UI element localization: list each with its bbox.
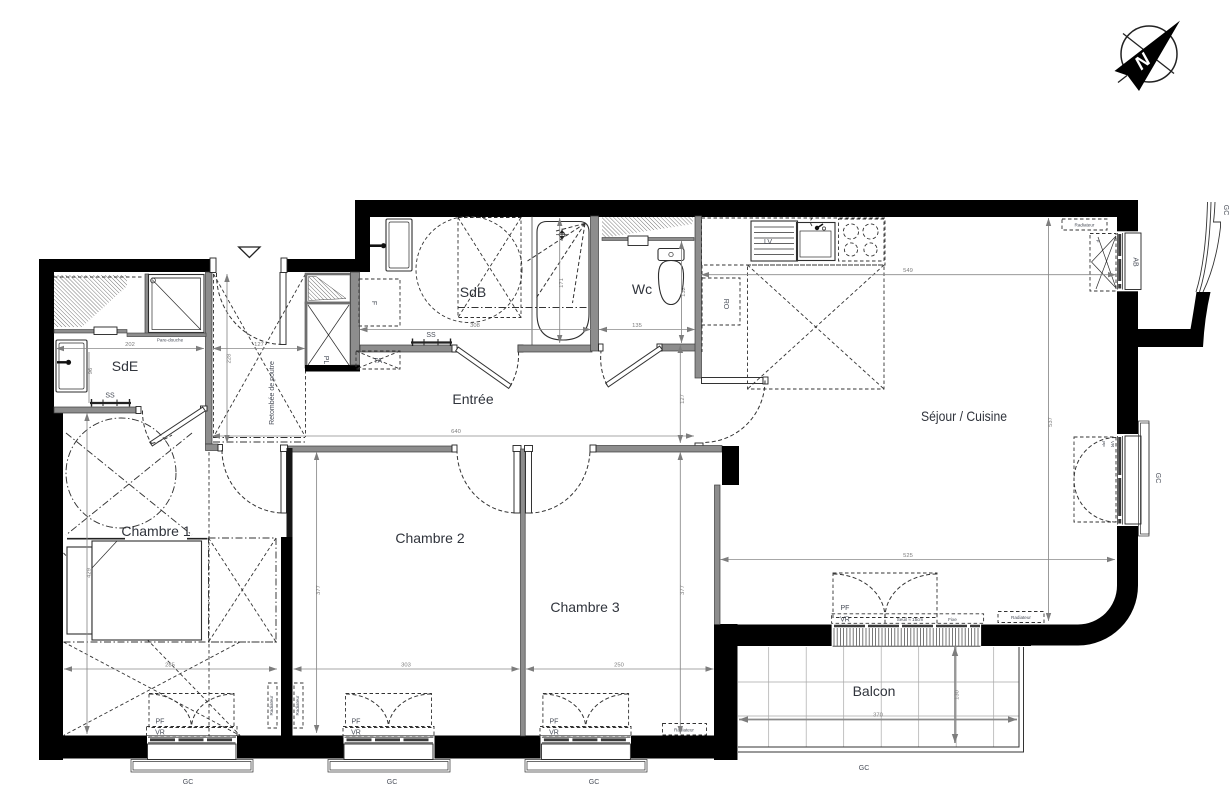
svg-text:Retombée de poutre: Retombée de poutre bbox=[269, 361, 276, 425]
svg-text:132: 132 bbox=[681, 287, 687, 297]
svg-text:AB: AB bbox=[1132, 257, 1139, 267]
svg-text:Séjour / Cuisine: Séjour / Cuisine bbox=[921, 408, 1007, 424]
svg-text:GC: GC bbox=[387, 779, 398, 786]
svg-text:GC: GC bbox=[1222, 205, 1229, 216]
svg-text:Fixe: Fixe bbox=[948, 617, 957, 622]
svg-text:Radiateur: Radiateur bbox=[295, 695, 300, 715]
svg-text:Radiateur: Radiateur bbox=[269, 695, 274, 715]
svg-text:377: 377 bbox=[680, 585, 686, 595]
svg-text:Radiateur: Radiateur bbox=[674, 728, 694, 733]
svg-text:549: 549 bbox=[903, 268, 913, 274]
svg-text:VR: VR bbox=[549, 730, 559, 737]
svg-text:Pare-douche: Pare-douche bbox=[157, 338, 184, 343]
svg-text:Radiateur: Radiateur bbox=[1011, 615, 1031, 620]
svg-text:127: 127 bbox=[254, 342, 264, 348]
svg-text:F: F bbox=[1095, 240, 1100, 243]
svg-text:GC: GC bbox=[183, 779, 194, 786]
svg-text:537: 537 bbox=[1048, 417, 1054, 427]
svg-text:PF: PF bbox=[1101, 441, 1106, 447]
svg-text:TA: TA bbox=[374, 358, 383, 365]
svg-text:GC: GC bbox=[859, 765, 870, 772]
svg-text:VR: VR bbox=[155, 730, 165, 737]
svg-text:GC: GC bbox=[589, 779, 600, 786]
svg-text:640: 640 bbox=[451, 429, 461, 435]
svg-text:VR: VR bbox=[1110, 441, 1115, 448]
svg-text:135: 135 bbox=[632, 323, 642, 329]
svg-text:PF: PF bbox=[550, 719, 559, 726]
svg-text:LV: LV bbox=[764, 239, 772, 246]
svg-text:202: 202 bbox=[125, 342, 135, 348]
svg-text:VR: VR bbox=[351, 730, 361, 737]
svg-text:PF: PF bbox=[156, 719, 165, 726]
svg-text:377: 377 bbox=[316, 585, 322, 595]
svg-text:SdE: SdE bbox=[112, 358, 138, 374]
svg-text:285: 285 bbox=[165, 663, 175, 669]
svg-text:Chambre 1: Chambre 1 bbox=[121, 523, 190, 539]
svg-text:Entrée: Entrée bbox=[452, 391, 493, 407]
svg-text:SS: SS bbox=[426, 332, 436, 339]
svg-text:Chambre 2: Chambre 2 bbox=[395, 530, 464, 546]
svg-text:Chambre 3: Chambre 3 bbox=[550, 599, 619, 615]
svg-text:F: F bbox=[370, 301, 377, 305]
svg-text:RO: RO bbox=[722, 299, 729, 310]
svg-text:Radiateur: Radiateur bbox=[1075, 223, 1095, 228]
svg-text:PF: PF bbox=[352, 719, 361, 726]
svg-text:370: 370 bbox=[873, 713, 883, 719]
svg-text:GC: GC bbox=[1154, 473, 1161, 484]
svg-text:308: 308 bbox=[470, 323, 480, 329]
svg-text:Wc: Wc bbox=[632, 281, 652, 297]
svg-text:127: 127 bbox=[680, 394, 686, 404]
svg-text:PF: PF bbox=[841, 605, 850, 612]
svg-text:Seuil ≈ 15cm: Seuil ≈ 15cm bbox=[897, 617, 924, 622]
svg-text:SS: SS bbox=[105, 393, 115, 400]
svg-text:130: 130 bbox=[955, 690, 961, 700]
svg-text:303: 303 bbox=[401, 663, 411, 669]
svg-text:SdB: SdB bbox=[460, 284, 486, 300]
svg-text:228: 228 bbox=[227, 354, 233, 364]
svg-text:525: 525 bbox=[903, 553, 913, 559]
svg-text:429: 429 bbox=[87, 568, 93, 578]
svg-text:96: 96 bbox=[88, 368, 94, 374]
svg-text:250: 250 bbox=[614, 663, 624, 669]
svg-text:PL: PL bbox=[322, 356, 329, 365]
svg-text:VR: VR bbox=[840, 617, 850, 624]
svg-text:Balcon: Balcon bbox=[853, 683, 896, 699]
svg-text:171: 171 bbox=[559, 278, 565, 288]
